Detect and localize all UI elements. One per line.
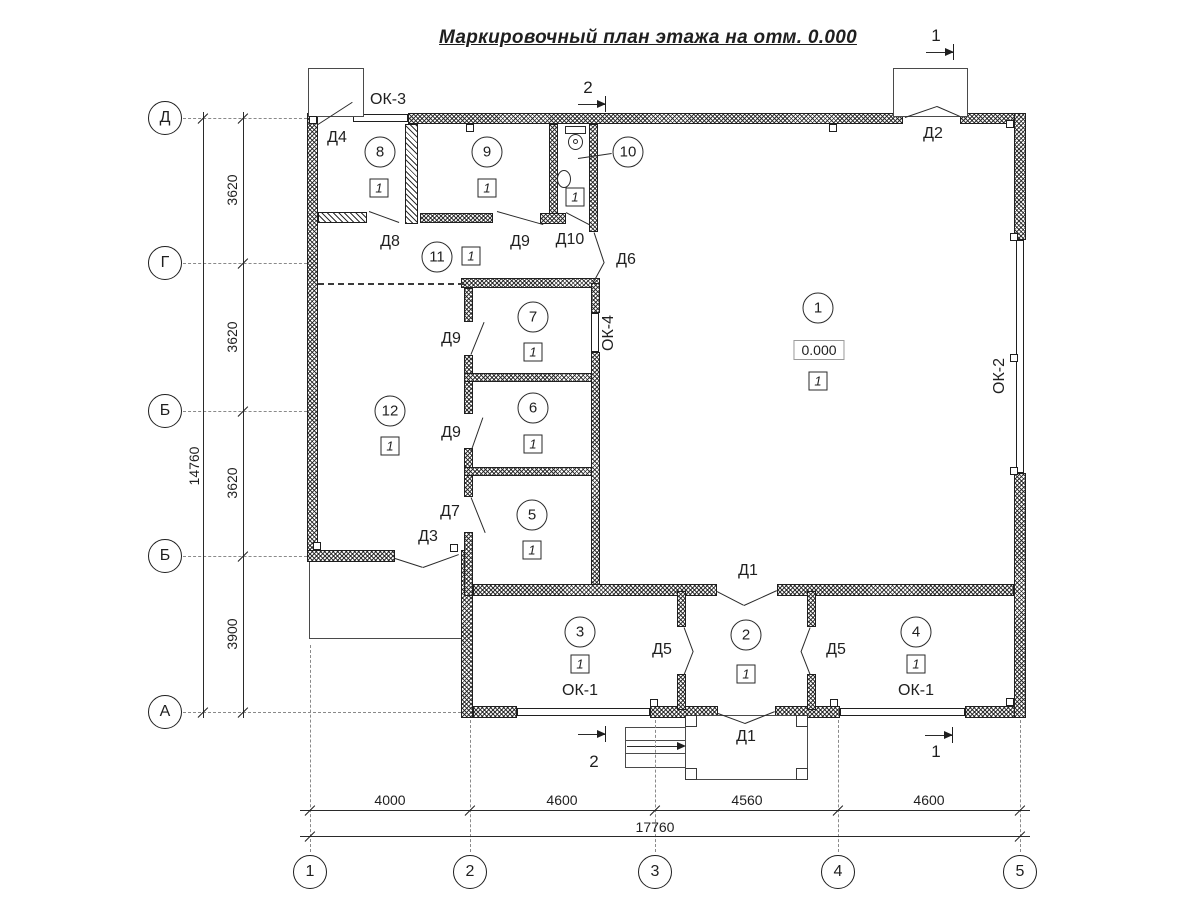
jamb-mark bbox=[1010, 467, 1018, 475]
wall-block-right-b bbox=[591, 352, 600, 596]
door-leaf-d3 bbox=[423, 554, 459, 568]
wall-wc-right bbox=[589, 124, 598, 232]
dim-text-bottom-total: 17760 bbox=[636, 819, 675, 835]
grid-bubble-col-4: 4 bbox=[821, 855, 855, 889]
dim-text-b-a: 3900 bbox=[224, 618, 240, 649]
door-leaf-d10 bbox=[566, 212, 589, 225]
porch-northwest bbox=[308, 68, 364, 117]
section-mark-1-top-label: 1 bbox=[931, 26, 940, 46]
wall-room6-5-divider bbox=[464, 467, 600, 476]
door-leaf-d7 bbox=[470, 497, 485, 532]
door-leaf-d8 bbox=[369, 211, 399, 223]
grid-bubble-col-2: 2 bbox=[453, 855, 487, 889]
grid-bubble-row-d: Д bbox=[148, 101, 182, 135]
door-leaf-d5-left bbox=[683, 627, 693, 651]
grid-bubble-row-g: Г bbox=[148, 246, 182, 280]
door-leaf-d5-right bbox=[800, 627, 810, 651]
window-label-ok3: ОК-3 bbox=[370, 91, 406, 109]
door-leaf-d1-top bbox=[744, 590, 777, 606]
wall-wc-left bbox=[549, 124, 558, 216]
stair-direction-line bbox=[627, 746, 679, 747]
dim-line-left-segments bbox=[243, 112, 244, 718]
section-mark-1-top-tick bbox=[953, 44, 954, 60]
door-leaf-d9-room9 bbox=[497, 211, 543, 225]
window-label-ok1-left: ОК-1 bbox=[562, 682, 598, 700]
dim-text-g-b: 3620 bbox=[224, 321, 240, 352]
wall-room8-right bbox=[405, 124, 418, 224]
grid-bubble-row-b2: Б bbox=[148, 539, 182, 573]
room-badge-7: 1 bbox=[524, 343, 543, 362]
terrace-outline-west bbox=[309, 562, 310, 638]
drawing-title: Маркировочный план этажа на отм. 0.000 bbox=[439, 27, 857, 49]
jamb-mark bbox=[450, 544, 458, 552]
dim-text-d-g: 3620 bbox=[224, 174, 240, 205]
floor-plan-sheet: Маркировочный план этажа на отм. 0.000 2… bbox=[0, 0, 1200, 900]
door-label-d6: Д6 bbox=[616, 251, 636, 269]
room-circle-4: 4 bbox=[901, 617, 932, 648]
window-label-ok1-right: ОК-1 bbox=[898, 682, 934, 700]
wall-north-main bbox=[408, 113, 903, 124]
room-badge-11: 1 bbox=[462, 247, 481, 266]
grid-line-col-4 bbox=[838, 720, 839, 852]
room-circle-2: 2 bbox=[731, 620, 762, 651]
room-badge-5: 1 bbox=[523, 541, 542, 560]
wall-south-a bbox=[473, 706, 517, 718]
door-label-d9-room6: Д9 bbox=[441, 424, 461, 442]
wall-block-left-a bbox=[464, 288, 473, 322]
terrace-outline-south bbox=[309, 638, 461, 639]
wall-east-lower bbox=[1014, 473, 1026, 718]
wall-wc-left-foot bbox=[540, 213, 566, 224]
room-circle-6: 6 bbox=[518, 393, 549, 424]
room-badge-12: 1 bbox=[381, 437, 400, 456]
wall-block-right-a bbox=[591, 283, 600, 313]
grid-bubble-col-1: 1 bbox=[293, 855, 327, 889]
grid-line-col-1 bbox=[310, 645, 311, 852]
door-label-d5-left: Д5 bbox=[652, 641, 672, 659]
stair-direction-arrow-icon bbox=[677, 742, 686, 750]
wall-west bbox=[307, 113, 318, 562]
room-circle-11: 11 bbox=[422, 242, 453, 273]
grid-line-row-b1 bbox=[183, 411, 307, 412]
door-label-d9-room7: Д9 bbox=[441, 330, 461, 348]
window-ok4 bbox=[591, 313, 599, 352]
dim-text-left-total: 14760 bbox=[186, 447, 202, 486]
grid-bubble-row-b1: Б bbox=[148, 394, 182, 428]
grid-line-row-b2 bbox=[183, 556, 307, 557]
jamb-mark bbox=[650, 699, 658, 707]
room-circle-1: 1 bbox=[803, 293, 834, 324]
corridor-dashed-boundary bbox=[318, 283, 464, 285]
porch-corner-mark bbox=[685, 715, 697, 727]
grid-bubble-row-a: А bbox=[148, 695, 182, 729]
door-label-d3: Д3 bbox=[418, 528, 438, 546]
window-ok1-left bbox=[517, 708, 650, 716]
elevation-mark: 0.000 bbox=[793, 340, 844, 360]
door-leaf-d5-left bbox=[683, 651, 693, 674]
jamb-mark bbox=[309, 116, 317, 124]
dim-text-b-b: 3620 bbox=[224, 467, 240, 498]
jamb-mark bbox=[1006, 698, 1014, 706]
dim-text-4-5: 4600 bbox=[913, 792, 944, 808]
jamb-mark bbox=[1010, 354, 1018, 362]
room-badge-6: 1 bbox=[524, 435, 543, 454]
jamb-mark bbox=[1006, 120, 1014, 128]
window-label-ok2: ОК-2 bbox=[991, 358, 1009, 394]
porch-corner-mark bbox=[796, 715, 808, 727]
wall-row-b2 bbox=[307, 550, 395, 562]
room-badge-8: 1 bbox=[370, 179, 389, 198]
section-mark-1-bottom-tick bbox=[952, 727, 953, 743]
jamb-mark bbox=[313, 542, 321, 550]
toilet-drain-icon bbox=[573, 139, 578, 144]
wall-east-upper bbox=[1014, 113, 1026, 240]
door-label-d7: Д7 bbox=[440, 503, 460, 521]
sink-icon bbox=[557, 170, 571, 188]
porch-corner-mark bbox=[796, 768, 808, 780]
door-label-d10: Д10 bbox=[556, 231, 585, 249]
room-badge-2: 1 bbox=[737, 665, 756, 684]
window-ok1-right bbox=[840, 708, 965, 716]
wall-room7-6-divider bbox=[464, 373, 600, 382]
room-circle-9: 9 bbox=[472, 137, 503, 168]
wall-room2-right-a bbox=[807, 591, 816, 627]
dim-line-bottom-segments bbox=[300, 810, 1030, 811]
wall-block-top bbox=[461, 278, 600, 288]
door-label-d8: Д8 bbox=[380, 233, 400, 251]
section-mark-2-top-tick bbox=[605, 96, 606, 112]
toilet-tank-icon bbox=[565, 126, 586, 134]
room-badge-4: 1 bbox=[907, 655, 926, 674]
door-label-d1-top: Д1 bbox=[738, 562, 758, 580]
door-label-d4: Д4 bbox=[327, 129, 347, 147]
grid-bubble-col-3: 3 bbox=[638, 855, 672, 889]
door-label-d5-right: Д5 bbox=[826, 641, 846, 659]
jamb-mark bbox=[466, 124, 474, 132]
dim-text-3-4: 4560 bbox=[731, 792, 762, 808]
window-label-ok4: ОК-4 bbox=[600, 315, 618, 351]
wall-room9-south bbox=[420, 213, 493, 223]
jamb-mark bbox=[1010, 233, 1018, 241]
porch-corner-mark bbox=[685, 768, 697, 780]
section-mark-2-bottom-tick bbox=[605, 726, 606, 742]
door-label-d9-room9: Д9 bbox=[510, 233, 530, 251]
room-badge-1: 1 bbox=[809, 372, 828, 391]
door-leaf-d1-top bbox=[717, 591, 745, 606]
door-leaf-d6 bbox=[593, 232, 604, 262]
grid-line-row-a bbox=[183, 712, 461, 713]
door-leaf-d3 bbox=[395, 558, 423, 568]
room-circle-12: 12 bbox=[375, 396, 406, 427]
wall-room2-right-b bbox=[807, 674, 816, 710]
entrance-porch bbox=[685, 715, 808, 780]
porch-northeast bbox=[893, 68, 968, 117]
grid-line-row-g bbox=[183, 263, 307, 264]
room-circle-10: 10 bbox=[613, 137, 644, 168]
grid-line-col-5 bbox=[1020, 720, 1021, 852]
room-circle-3: 3 bbox=[565, 617, 596, 648]
grid-line-col-2 bbox=[470, 720, 471, 852]
dim-line-left-total bbox=[203, 112, 204, 718]
wall-block-left-b bbox=[464, 355, 473, 414]
section-mark-2-top-label: 2 bbox=[583, 78, 592, 98]
room-circle-5: 5 bbox=[517, 500, 548, 531]
room-badge-10: 1 bbox=[566, 188, 585, 207]
room-circle-8: 8 bbox=[365, 137, 396, 168]
jamb-mark bbox=[829, 124, 837, 132]
section-mark-1-bottom-label: 1 bbox=[931, 742, 940, 762]
wall-room8-south bbox=[318, 212, 367, 223]
wall-room2-left-a bbox=[677, 591, 686, 627]
door-label-d1-bottom: Д1 bbox=[736, 728, 756, 746]
room-circle-7: 7 bbox=[518, 302, 549, 333]
dim-text-1-2: 4000 bbox=[374, 792, 405, 808]
dim-text-2-3: 4600 bbox=[546, 792, 577, 808]
door-label-d2: Д2 bbox=[923, 125, 943, 143]
section-mark-2-bottom-label: 2 bbox=[589, 752, 598, 772]
door-leaf-d9-room6 bbox=[470, 417, 483, 451]
wall-block-left-d bbox=[464, 532, 473, 596]
room-badge-9: 1 bbox=[478, 179, 497, 198]
dim-line-bottom-total bbox=[300, 836, 1030, 837]
grid-bubble-col-5: 5 bbox=[1003, 855, 1037, 889]
door-leaf-d9-room7 bbox=[470, 322, 484, 354]
wall-room2-left-b bbox=[677, 674, 686, 710]
room-badge-3: 1 bbox=[571, 655, 590, 674]
jamb-mark bbox=[830, 699, 838, 707]
door-leaf-d5-right bbox=[800, 651, 810, 674]
